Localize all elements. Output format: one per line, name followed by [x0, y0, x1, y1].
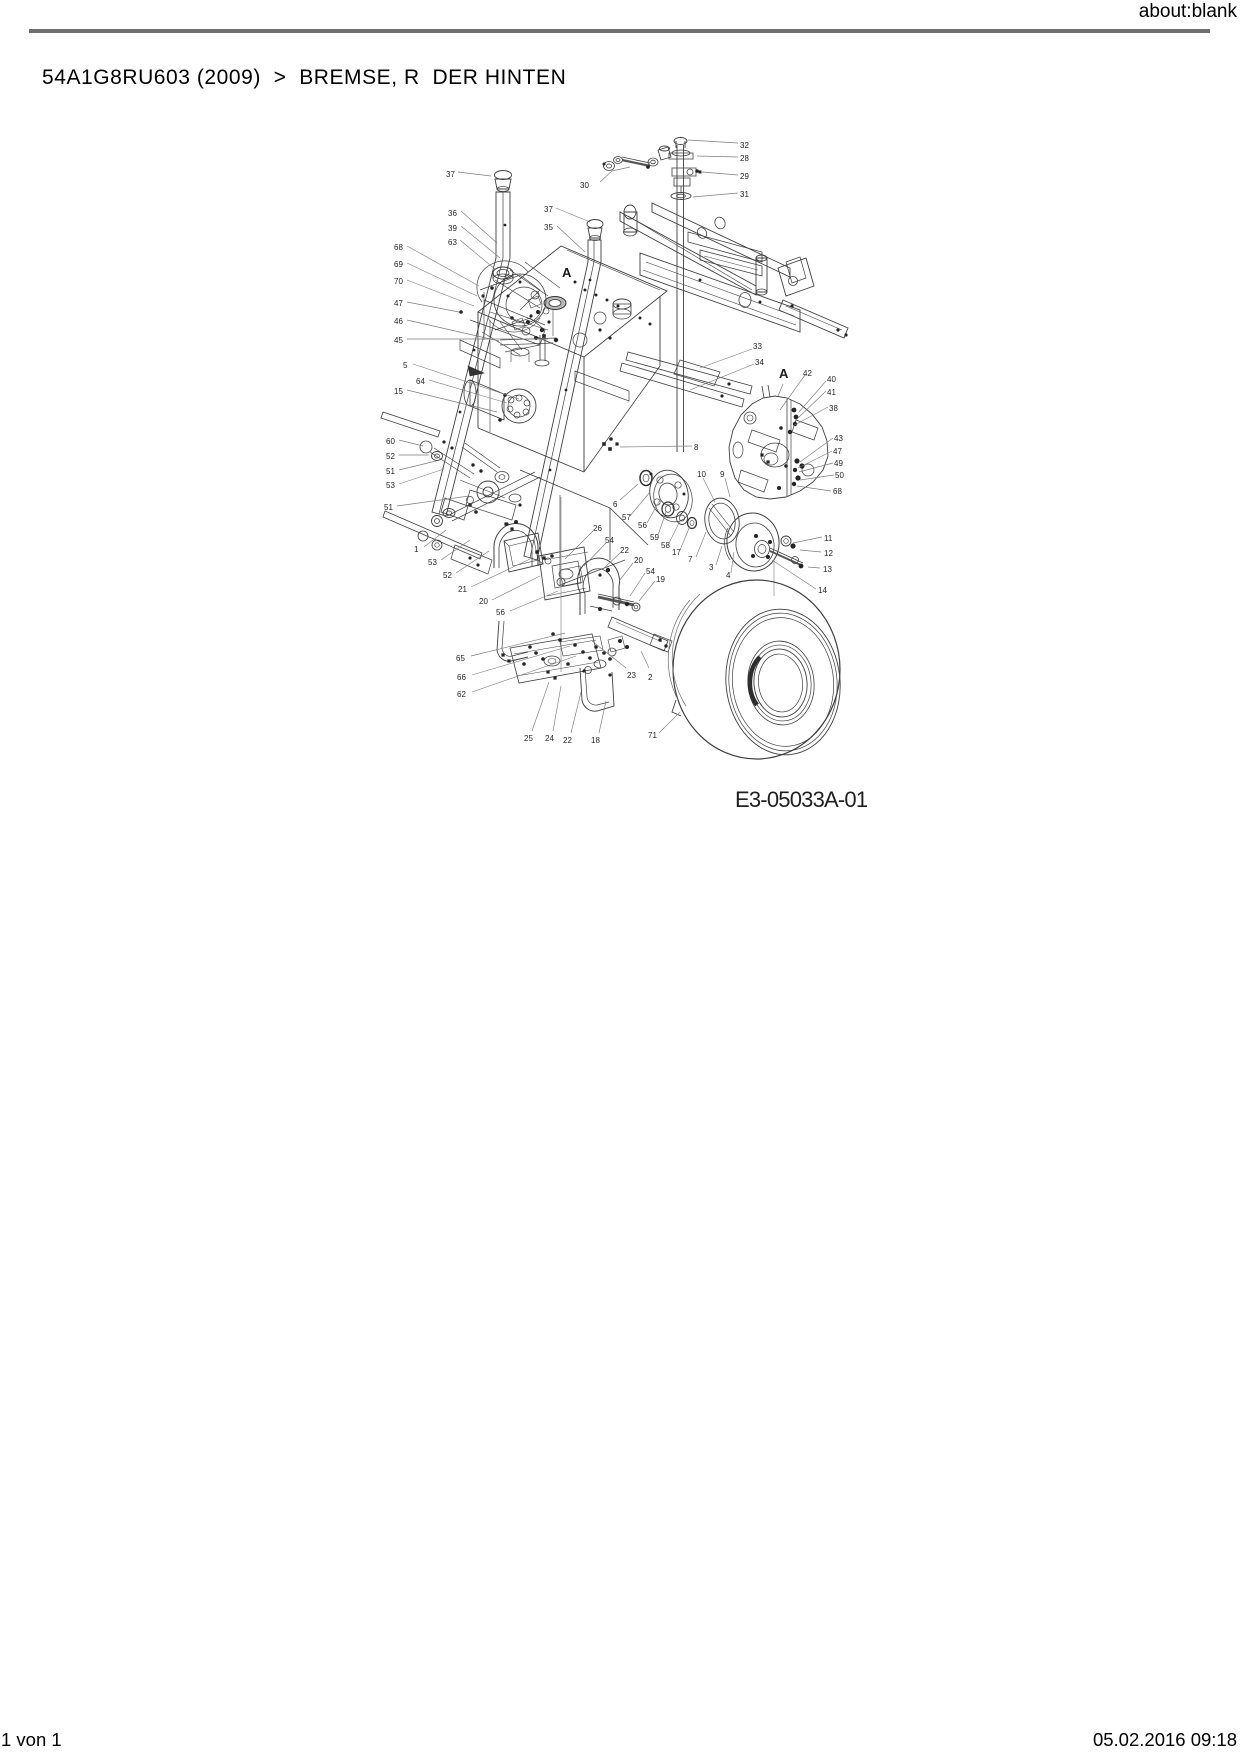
svg-text:47: 47: [833, 447, 842, 456]
svg-text:11: 11: [824, 534, 833, 543]
svg-text:30: 30: [580, 181, 589, 190]
svg-text:66: 66: [457, 673, 466, 682]
svg-text:49: 49: [834, 459, 843, 468]
svg-text:1: 1: [414, 545, 419, 554]
svg-text:23: 23: [627, 671, 636, 680]
svg-text:41: 41: [827, 388, 836, 397]
svg-text:53: 53: [428, 558, 437, 567]
svg-text:14: 14: [818, 586, 827, 595]
svg-text:E3-05033A-01: E3-05033A-01: [735, 787, 868, 812]
svg-text:70: 70: [394, 277, 403, 286]
svg-text:12: 12: [824, 549, 833, 558]
svg-text:31: 31: [740, 190, 749, 199]
svg-text:50: 50: [835, 471, 844, 480]
svg-text:40: 40: [827, 375, 836, 384]
svg-text:10: 10: [697, 470, 706, 479]
svg-text:58: 58: [661, 541, 670, 550]
svg-text:24: 24: [545, 734, 554, 743]
svg-text:56: 56: [638, 521, 647, 530]
svg-text:6: 6: [613, 500, 618, 509]
svg-text:21: 21: [458, 585, 467, 594]
svg-text:46: 46: [394, 317, 403, 326]
svg-text:43: 43: [834, 434, 843, 443]
svg-text:56: 56: [496, 608, 505, 617]
svg-text:69: 69: [394, 260, 403, 269]
svg-text:9: 9: [720, 470, 725, 479]
svg-text:5: 5: [403, 361, 408, 370]
svg-text:52: 52: [386, 452, 395, 461]
svg-text:3: 3: [709, 563, 714, 572]
svg-text:7: 7: [688, 555, 693, 564]
svg-text:26: 26: [593, 524, 602, 533]
svg-text:25: 25: [524, 734, 533, 743]
svg-text:22: 22: [563, 736, 572, 745]
svg-text:65: 65: [456, 654, 465, 663]
svg-text:42: 42: [803, 369, 812, 378]
svg-text:22: 22: [620, 546, 629, 555]
svg-text:60: 60: [386, 437, 395, 446]
svg-text:51: 51: [384, 503, 393, 512]
svg-text:A: A: [779, 366, 789, 381]
svg-text:62: 62: [457, 690, 466, 699]
svg-text:52: 52: [443, 571, 452, 580]
svg-text:64: 64: [416, 377, 425, 386]
svg-text:45: 45: [394, 336, 403, 345]
svg-text:20: 20: [479, 597, 488, 606]
svg-text:13: 13: [823, 565, 832, 574]
svg-text:35: 35: [544, 223, 553, 232]
svg-text:53: 53: [386, 481, 395, 490]
svg-text:15: 15: [394, 387, 403, 396]
svg-text:20: 20: [634, 556, 643, 565]
svg-text:54: 54: [646, 567, 655, 576]
svg-text:18: 18: [591, 736, 600, 745]
svg-text:34: 34: [755, 358, 764, 367]
svg-text:51: 51: [386, 467, 395, 476]
svg-text:71: 71: [648, 731, 657, 740]
svg-text:A: A: [562, 265, 572, 280]
svg-text:57: 57: [622, 513, 631, 522]
svg-text:37: 37: [544, 205, 553, 214]
svg-text:19: 19: [656, 575, 665, 584]
svg-text:54: 54: [605, 536, 614, 545]
svg-text:68: 68: [833, 487, 842, 496]
svg-text:28: 28: [740, 154, 749, 163]
svg-text:68: 68: [394, 243, 403, 252]
svg-text:8: 8: [694, 443, 699, 452]
svg-text:4: 4: [726, 571, 731, 580]
svg-text:17: 17: [672, 548, 681, 557]
svg-text:37: 37: [446, 170, 455, 179]
svg-text:47: 47: [394, 299, 403, 308]
svg-text:36: 36: [448, 209, 457, 218]
svg-text:2: 2: [648, 673, 653, 682]
svg-text:33: 33: [753, 342, 762, 351]
svg-text:38: 38: [829, 404, 838, 413]
svg-text:59: 59: [650, 533, 659, 542]
svg-text:63: 63: [448, 238, 457, 247]
svg-text:39: 39: [448, 224, 457, 233]
svg-text:29: 29: [740, 172, 749, 181]
svg-text:32: 32: [740, 141, 749, 150]
